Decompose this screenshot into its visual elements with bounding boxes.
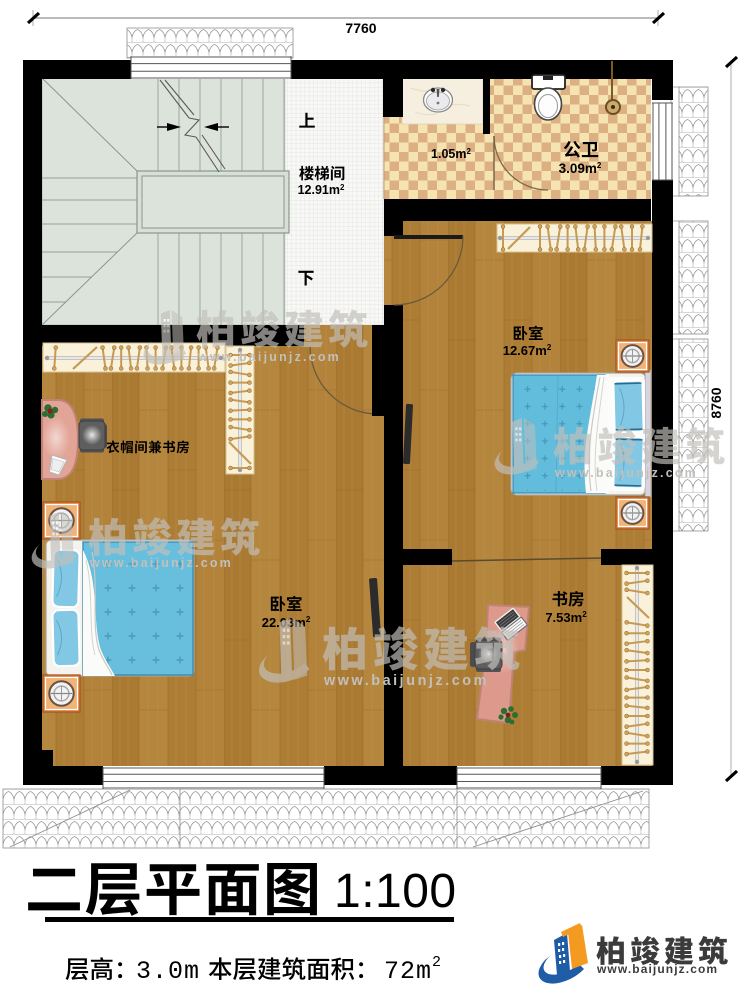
svg-text:1:100: 1:100 (334, 865, 457, 918)
svg-text:7760: 7760 (345, 20, 376, 36)
svg-text:7.53m2: 7.53m2 (545, 610, 587, 625)
svg-text:www.baijunjz.com: www.baijunjz.com (554, 466, 698, 480)
svg-text:www.baijunjz.com: www.baijunjz.com (197, 350, 341, 364)
svg-text:1.05m2: 1.05m2 (431, 147, 471, 161)
svg-text:3.09m2: 3.09m2 (559, 161, 602, 176)
svg-text:www.baijunjz.com: www.baijunjz.com (596, 962, 718, 976)
svg-text:2: 2 (432, 954, 441, 971)
svg-text:12.91m2: 12.91m2 (298, 183, 345, 197)
svg-text:8760: 8760 (708, 387, 724, 418)
svg-text:www.baijunjz.com: www.baijunjz.com (323, 673, 489, 689)
svg-text:www.baijunjz.com: www.baijunjz.com (89, 556, 233, 570)
svg-text:3.0m: 3.0m (136, 957, 200, 986)
svg-text:72m: 72m (384, 957, 432, 986)
svg-text:12.67m2: 12.67m2 (503, 343, 552, 358)
